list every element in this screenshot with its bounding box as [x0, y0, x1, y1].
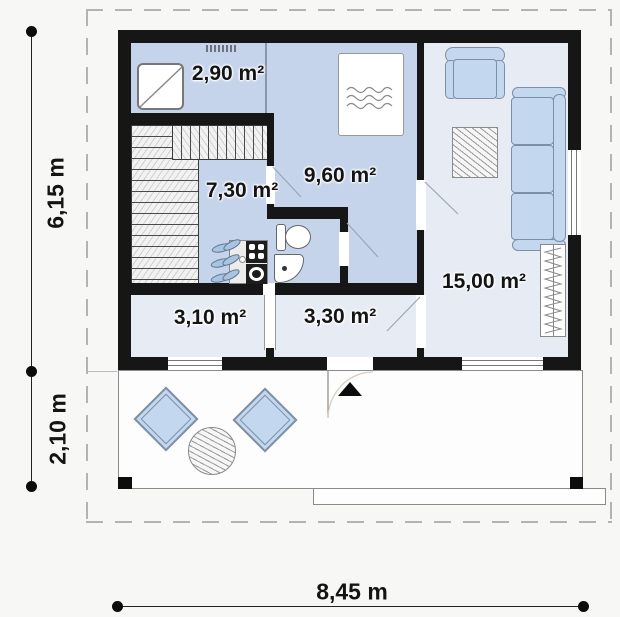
toilet-icon [285, 225, 311, 249]
sofa-icon [511, 97, 554, 145]
door-opening-living [416, 180, 426, 230]
wall-bathroom-top [267, 207, 348, 219]
window-right [568, 150, 581, 235]
window-living [462, 357, 543, 370]
rug-icon [452, 127, 498, 178]
partition-310-330 [264, 295, 276, 350]
room-label-bedroom: 9,60 m² [304, 164, 376, 188]
dimension-house-width: 8,45 m [316, 579, 388, 606]
room-label-entry: 3,30 m² [304, 305, 376, 329]
room-label-storage: 3,10 m² [174, 306, 246, 330]
bed-icon [338, 53, 404, 136]
shower-icon [137, 63, 184, 110]
dimension-line-left [31, 31, 32, 486]
door-opening-bathroom [339, 232, 349, 266]
dimension-extension-line [88, 371, 117, 372]
wall-below-shower-room [131, 113, 274, 125]
wall-mid-right [275, 283, 417, 295]
sofa-cushion-2 [511, 145, 554, 193]
armchair-icon [453, 59, 497, 99]
room-label-hall: 7,30 m² [206, 179, 278, 203]
wall-outer-bottom-2 [222, 357, 327, 370]
terrace-post-left [118, 477, 132, 489]
entrance-opening [327, 357, 373, 370]
wall-outer-bottom-1 [118, 357, 168, 370]
wall-outer-bottom-3 [373, 357, 462, 370]
radiator-icon [540, 244, 566, 337]
staircase-hatch-upper [172, 125, 269, 160]
washing-machine-icon [246, 264, 267, 284]
door-opening-entry-hall [416, 295, 426, 348]
terrace-table-icon [188, 427, 236, 475]
wall-outer-left [118, 30, 131, 370]
dimension-house-depth: 6,15 m [43, 157, 70, 229]
wall-hall-bedroom [267, 125, 274, 166]
entrance-arrow-icon [338, 382, 362, 396]
wall-outer-bottom-4 [543, 357, 581, 370]
plot-border-top [86, 9, 612, 11]
wall-bathroom-right-lower [340, 266, 348, 283]
plot-border-left [86, 9, 88, 523]
plot-border-bottom [86, 521, 612, 523]
terrace-step [313, 488, 606, 505]
wall-living-mid [417, 230, 424, 295]
dim-dot-bottom-right [578, 601, 589, 612]
wall-mid-left [118, 283, 263, 295]
terrace-post-right [570, 477, 583, 489]
dim-dot-bottom-left [112, 601, 123, 612]
window-storage [168, 357, 222, 370]
dim-dot-left-top [26, 26, 37, 37]
wall-outer-right-upper [568, 30, 581, 150]
dimension-terrace-depth: 2,10 m [45, 393, 72, 465]
stove-icon [246, 241, 267, 263]
dimension-line-bottom [117, 606, 583, 607]
wall-outer-top [118, 30, 581, 43]
room-label-shower: 2,90 m² [192, 62, 264, 86]
wall-outer-right-lower [568, 235, 581, 370]
wall-living-upper [417, 30, 424, 180]
dim-dot-left-bottom [26, 481, 37, 492]
door-opening-mid [263, 283, 275, 295]
floor-plan-canvas: 2,90 m² 7,30 m² 9,60 m² 15,00 m² 3,10 m²… [0, 0, 620, 617]
partition-shower-bedroom [265, 43, 267, 113]
wall-bathroom-right-upper [340, 219, 348, 232]
room-label-living: 15,00 m² [442, 270, 526, 294]
sofa-cushion-3 [511, 193, 554, 240]
plot-border-right [610, 9, 612, 523]
sofa-back [553, 94, 566, 242]
counter-knob [239, 256, 246, 263]
dim-dot-left-mid [26, 366, 37, 377]
